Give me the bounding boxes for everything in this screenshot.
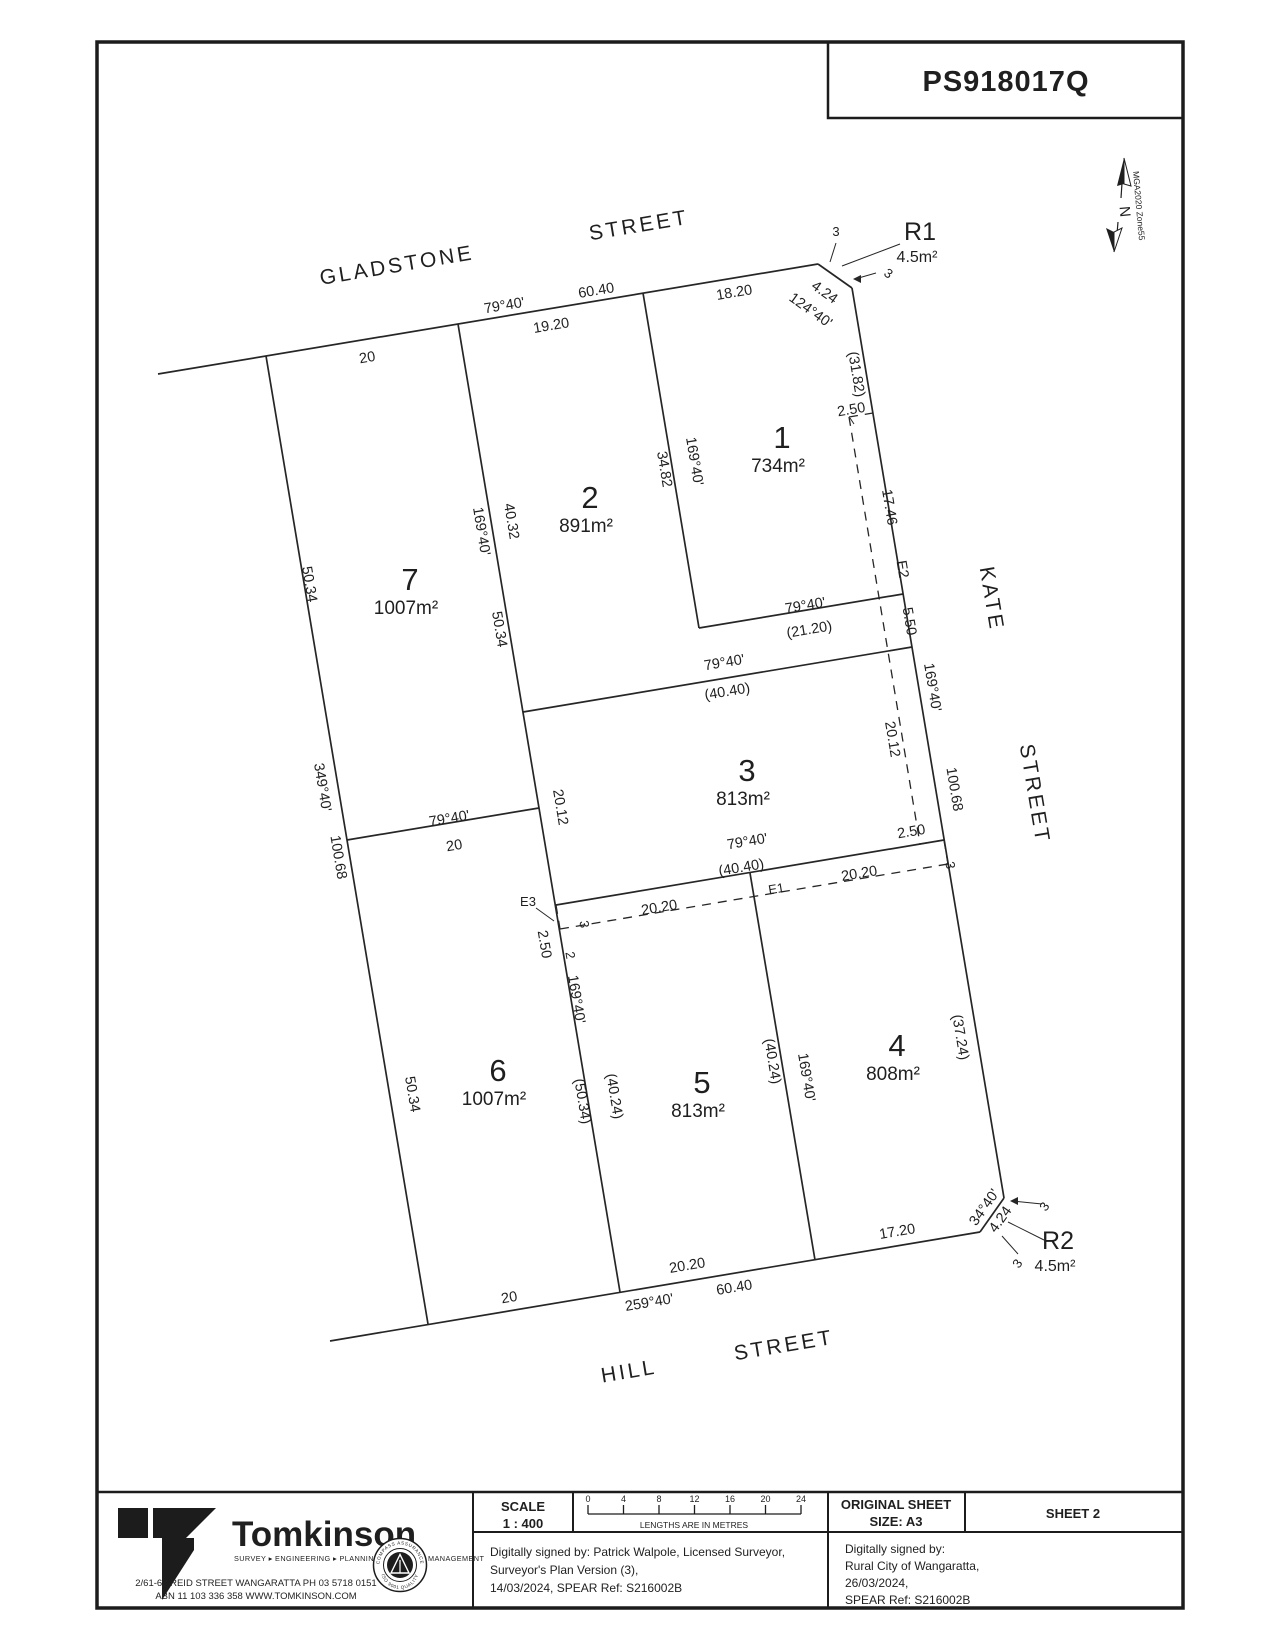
firm-address-1: 2/61-63 REID STREET WANGARATTA PH 03 571… xyxy=(135,1578,376,1589)
r2-bottom-3-leader xyxy=(1002,1236,1018,1254)
meas-lot1-south-bearing: 79°40' xyxy=(784,595,827,618)
council-sig-line1: Digitally signed by: xyxy=(845,1542,945,1556)
north-arrow-head-right xyxy=(1124,158,1131,186)
lot-labels: 1 734m² 2 891m² 3 813m² 4 808m² 5 813m² … xyxy=(374,420,920,1122)
meas-lot7-frontage: 20 xyxy=(358,349,377,367)
north-arrow-tail-right xyxy=(1114,228,1122,252)
north-label: N xyxy=(1116,205,1134,217)
meas-lot76-bearing: 79°40' xyxy=(428,808,471,831)
meas-west-lot6: 50.34 xyxy=(401,1075,423,1113)
meas-lot5-frontage: 20.20 xyxy=(668,1255,706,1277)
lot5-area: 813m² xyxy=(671,1101,725,1122)
meas-kate-total: 100.68 xyxy=(942,766,965,812)
meas-lot3-north: (40.40) xyxy=(703,680,751,703)
meas-hill-total: 60.40 xyxy=(715,1277,753,1299)
scale-tick-16: 16 xyxy=(725,1494,735,1504)
easement-e1-label: E1 xyxy=(767,880,785,897)
plan-number: PS918017Q xyxy=(922,66,1089,98)
council-sig-line3: 26/03/2024, xyxy=(845,1576,908,1590)
reserve-r2-area: 4.5m² xyxy=(1035,1258,1077,1275)
meas-west-lot7: 50.34 xyxy=(298,565,320,603)
firm-logo-cell: Tomkinson SURVEY ▸ ENGINEERING ▸ PLANNIN… xyxy=(118,1508,484,1602)
street-hill-street: STREET xyxy=(732,1326,835,1365)
lot1-area: 734m² xyxy=(751,456,805,477)
meas-e3-2: 2 xyxy=(562,950,578,960)
lot5-number: 5 xyxy=(693,1065,710,1100)
meas-r1-side-top: 3 xyxy=(832,224,839,239)
sheet-number: SHEET 2 xyxy=(1046,1506,1100,1521)
meas-e1-west-length: 20.20 xyxy=(640,897,678,919)
meas-lot4-frontage: 17.20 xyxy=(878,1221,916,1243)
scale-tick-12: 12 xyxy=(689,1494,699,1504)
meas-lot1-west: 34.82 xyxy=(653,450,675,488)
street-gladstone-street: STREET xyxy=(587,206,690,245)
lot7-area: 1007m² xyxy=(374,598,438,619)
meas-lot4-east: (37.24) xyxy=(948,1013,971,1061)
meas-lot6-frontage: 20 xyxy=(500,1289,519,1307)
scale-ratio: 1 : 400 xyxy=(503,1516,543,1531)
reserve-r2-label: R2 xyxy=(1042,1227,1074,1255)
north-arrow-head-left xyxy=(1117,158,1124,186)
meas-r1-side-right: 3 xyxy=(881,265,896,281)
easement-e2-label: E2 xyxy=(893,559,912,579)
r2-arrowhead xyxy=(1010,1197,1018,1205)
r1-arrowhead xyxy=(853,275,861,283)
meas-lot5-west: (40.24) xyxy=(602,1072,625,1120)
meas-lot3-south: (40.40) xyxy=(717,856,765,879)
lot3-area: 813m² xyxy=(716,789,770,810)
scale-tick-20: 20 xyxy=(760,1494,770,1504)
surveyor-sig-line2: Surveyor's Plan Version (3), xyxy=(490,1563,638,1577)
e3-leader xyxy=(536,908,554,921)
meas-r2-side-right: 3 xyxy=(1036,1199,1052,1214)
meas-lot3-south-bearing: 79°40' xyxy=(726,831,769,854)
council-signature: Digitally signed by: Rural City of Wanga… xyxy=(845,1542,979,1607)
scale-units-note: LENGTHS ARE IN METRES xyxy=(640,1520,748,1530)
meas-e1-east-width: 2.50 xyxy=(896,822,926,842)
r2-leader xyxy=(1008,1222,1044,1240)
lot4-number: 4 xyxy=(888,1028,905,1063)
original-sheet-line2: SIZE: A3 xyxy=(870,1514,923,1529)
meas-west-bearing: 349°40' xyxy=(310,762,334,813)
meas-lot3-west: 20.12 xyxy=(549,788,571,826)
meas-hill-bearing: 259°40' xyxy=(624,1291,675,1315)
lot2-area: 891m² xyxy=(559,516,613,537)
r1-top-3-leader xyxy=(830,243,836,262)
lot6-number: 6 xyxy=(489,1053,506,1088)
meas-lot76-length: 20 xyxy=(445,837,464,855)
gladstone-street-line xyxy=(158,264,818,374)
r1-leader xyxy=(842,244,900,266)
meas-e1-east-length: 20.20 xyxy=(840,863,878,885)
council-sig-line2: Rural City of Wangaratta, xyxy=(845,1559,979,1573)
meas-lot5-east: (40.24) xyxy=(760,1037,783,1085)
kate-street-line xyxy=(852,288,1004,1198)
meas-e2-length: 17.46 xyxy=(878,488,900,526)
meas-e1-east-3: 3 xyxy=(942,860,958,870)
measurement-labels: 79°40' 60.40 19.20 18.20 20 4.24 124°40'… xyxy=(298,224,1052,1315)
reserve-r1-label: R1 xyxy=(904,218,936,246)
scale-label: SCALE xyxy=(501,1499,545,1514)
meas-e3-3: 3 xyxy=(576,919,592,929)
meas-lot1-frontage: 18.20 xyxy=(715,282,753,304)
meas-lot6-east: (50.34) xyxy=(570,1077,593,1125)
firm-tagline: SURVEY ▸ ENGINEERING ▸ PLANNING ▸ PROJEC… xyxy=(234,1554,484,1563)
meas-e2-lot3: 20.12 xyxy=(881,720,903,758)
street-gladstone: GLADSTONE xyxy=(318,241,476,289)
scale-tick-8: 8 xyxy=(656,1494,661,1504)
tomkinson-logo-bar xyxy=(153,1508,216,1538)
scale-tick-24: 24 xyxy=(796,1494,806,1504)
meas-lot1-south: (21.20) xyxy=(785,618,833,641)
hill-street-line xyxy=(330,1232,980,1341)
plan-canvas: PS918017Q N MGA2020 Zone55 xyxy=(0,0,1275,1650)
firm-address-2: ABN 11 103 336 358 WWW.TOMKINSON.COM xyxy=(155,1591,356,1602)
lot3-number: 3 xyxy=(738,753,755,788)
council-sig-line4: SPEAR Ref: S216002B xyxy=(845,1593,970,1607)
meas-west-total: 100.68 xyxy=(326,834,349,880)
lot6-area: 1007m² xyxy=(462,1089,526,1110)
street-hill: HILL xyxy=(599,1356,658,1388)
reserve-r1-area: 4.5m² xyxy=(897,249,939,266)
street-kate: KATE xyxy=(975,565,1008,633)
north-arrow: N MGA2020 Zone55 xyxy=(1106,158,1147,252)
meas-r2-side-bottom: 3 xyxy=(1009,1256,1025,1271)
surveyor-sig-line3: 14/03/2024, SPEAR Ref: S216002B xyxy=(490,1581,682,1595)
scale-tick-0: 0 xyxy=(585,1494,590,1504)
meas-lot2-depth: 40.32 xyxy=(500,502,522,540)
meas-lot2-frontage: 19.20 xyxy=(532,315,570,337)
scale-tick-4: 4 xyxy=(621,1494,626,1504)
lot2-number: 2 xyxy=(581,480,598,515)
meas-e3-width: 2.50 xyxy=(534,929,554,959)
easement-e3-label: E3 xyxy=(520,894,536,909)
street-kate-street: STREET xyxy=(1015,742,1054,845)
original-sheet-line1: ORIGINAL SHEET xyxy=(841,1497,951,1512)
meas-lot3-north-bearing: 79°40' xyxy=(703,652,746,675)
meas-lot65-bearing: 169°40' xyxy=(564,974,588,1025)
lot4-area: 808m² xyxy=(866,1064,920,1085)
meas-e2-width-top: 2.50 xyxy=(836,400,866,420)
meas-strip-550: 5.50 xyxy=(899,606,919,636)
meas-kate-bearing: 169°40' xyxy=(920,662,944,713)
tomkinson-logo-square xyxy=(118,1508,148,1538)
north-arrow-tail-left xyxy=(1106,228,1114,252)
lot1-number: 1 xyxy=(773,420,790,455)
boundary-lines xyxy=(158,264,1004,1341)
survey-plan-sheet: PS918017Q N MGA2020 Zone55 xyxy=(0,0,1275,1650)
surveyor-sig-line1: Digitally signed by: Patrick Walpole, Li… xyxy=(490,1545,785,1559)
iso-9001-badge: COMPASS ASSURANCE ISO 9001 QUALITY xyxy=(374,1539,427,1592)
meas-lot1-west-bearing: 169°40' xyxy=(682,436,706,487)
lot7-number: 7 xyxy=(401,562,418,597)
surveyor-signature: Digitally signed by: Patrick Walpole, Li… xyxy=(490,1545,785,1595)
meas-lot54-bearing: 169°40' xyxy=(794,1052,818,1103)
scale-bar: 0 4 8 12 16 20 24 LENGTHS ARE IN METRES xyxy=(585,1494,806,1530)
